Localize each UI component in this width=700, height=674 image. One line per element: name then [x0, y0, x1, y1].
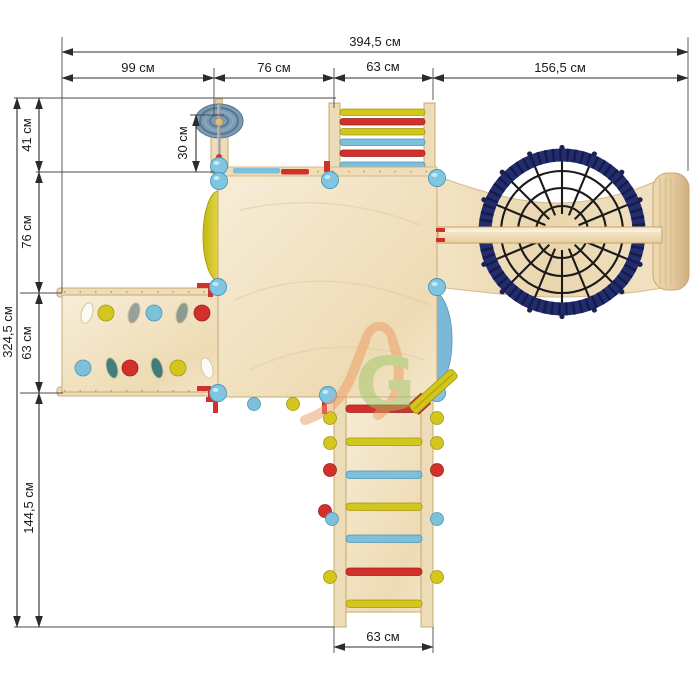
ladder-knob	[431, 571, 444, 584]
ramp-hold	[122, 360, 138, 376]
post-cap-highlight	[432, 173, 438, 177]
ramp-hold	[194, 305, 210, 321]
monkey-bar-rungs	[340, 109, 425, 169]
bracket-ramp-bot-h	[197, 386, 211, 391]
ladder-knob	[326, 513, 339, 526]
descent-ladder	[319, 395, 444, 627]
ladder-knob	[431, 464, 444, 477]
post-cap	[210, 279, 227, 296]
bracket-ramp-top-h	[197, 283, 211, 288]
ladder-rung	[346, 438, 422, 446]
net-rim-knot	[481, 262, 486, 267]
ramp-hold	[98, 305, 114, 321]
ramp-hold	[146, 305, 162, 321]
bracket-beam-2	[436, 238, 445, 242]
ladder-knob	[324, 571, 337, 584]
net-rim-knot	[527, 151, 532, 156]
net-rim-knot	[619, 170, 624, 175]
monkey-rung	[340, 109, 425, 116]
dim-top-seg1-label: 99 см	[121, 60, 155, 75]
dim-left-seg1-label: 41 см	[19, 118, 34, 152]
net-rim-knot	[527, 307, 532, 312]
bracket-beam-1	[436, 228, 445, 232]
wheel-hub	[215, 118, 223, 126]
watermark-letter: G	[355, 342, 416, 428]
climbing-ramp	[57, 288, 218, 396]
bracket-corner-v	[213, 402, 218, 413]
bracket-top-mid	[324, 161, 330, 172]
drawing-svg: G 394,5 см 99 см 76 см 63 см	[0, 0, 700, 674]
post-cap-highlight	[323, 390, 329, 394]
net-beam	[438, 227, 662, 243]
post-cap	[429, 279, 446, 296]
ladder-rung	[346, 535, 422, 543]
ladder-knob	[324, 464, 337, 477]
net-rim-knot	[592, 151, 597, 156]
dim-left-seg3-label: 63 см	[19, 326, 34, 360]
ramp-hold	[75, 360, 91, 376]
post-cap	[210, 385, 227, 402]
net-rim-knot	[592, 307, 597, 312]
net-rim-knot	[481, 197, 486, 202]
ladder-knob	[431, 412, 444, 425]
net-rim-knot	[637, 197, 642, 202]
ladder-rung	[346, 503, 422, 511]
post-cap-highlight	[325, 175, 331, 179]
slide-left-yellow	[203, 191, 219, 281]
monkey-rung	[340, 119, 425, 126]
platform-knob	[248, 398, 261, 411]
dim-left-seg2-label: 76 см	[19, 215, 34, 249]
playground-plan-drawing: G 394,5 см 99 см 76 см 63 см	[0, 0, 700, 674]
post-cap	[429, 170, 446, 187]
ladder-rung	[346, 568, 422, 576]
net-rim-knot	[637, 262, 642, 267]
ramp-hold	[170, 360, 186, 376]
monkey-rung	[340, 139, 425, 146]
post-cap	[322, 172, 339, 189]
dim-top-seg3-label: 63 см	[366, 59, 400, 74]
ladder-knob	[431, 437, 444, 450]
platform-knobs	[248, 398, 300, 411]
post-cap-highlight	[432, 282, 438, 286]
dim-top-seg2-label: 76 см	[257, 60, 291, 75]
dim-top-total-label: 394,5 см	[349, 34, 401, 49]
dim-left-seg4-label: 144,5 см	[21, 482, 36, 534]
net-rim-knot	[500, 170, 505, 175]
net-rim-knot	[559, 145, 564, 150]
post-cap-highlight	[213, 282, 219, 286]
monkey-rung	[340, 129, 425, 136]
net-rim-knot	[559, 314, 564, 319]
railing-segment	[281, 169, 309, 175]
ladder-rail-left	[334, 395, 346, 627]
post-cap-highlight	[214, 176, 220, 180]
ladder-rung	[346, 600, 422, 608]
net-rim-knot	[500, 289, 505, 294]
ladder-knob	[431, 513, 444, 526]
ladder-rung	[346, 471, 422, 479]
dim-top-seg4-label: 156,5 см	[534, 60, 586, 75]
post-cap-highlight	[213, 388, 219, 392]
post-cap-highlight	[214, 161, 220, 165]
net-module	[437, 145, 689, 319]
platform-knob	[287, 398, 300, 411]
dim-wheel-offset-label: 30 см	[175, 126, 190, 160]
monkey-rung	[340, 150, 425, 157]
ladder-rail-right	[421, 395, 433, 627]
post-cap	[211, 173, 228, 190]
net-rim-knot	[619, 289, 624, 294]
railing-segment	[233, 168, 280, 174]
ladder-knob	[324, 437, 337, 450]
dim-ladder-width-label: 63 см	[366, 629, 400, 644]
dim-left-total-label: 324,5 см	[0, 306, 15, 358]
